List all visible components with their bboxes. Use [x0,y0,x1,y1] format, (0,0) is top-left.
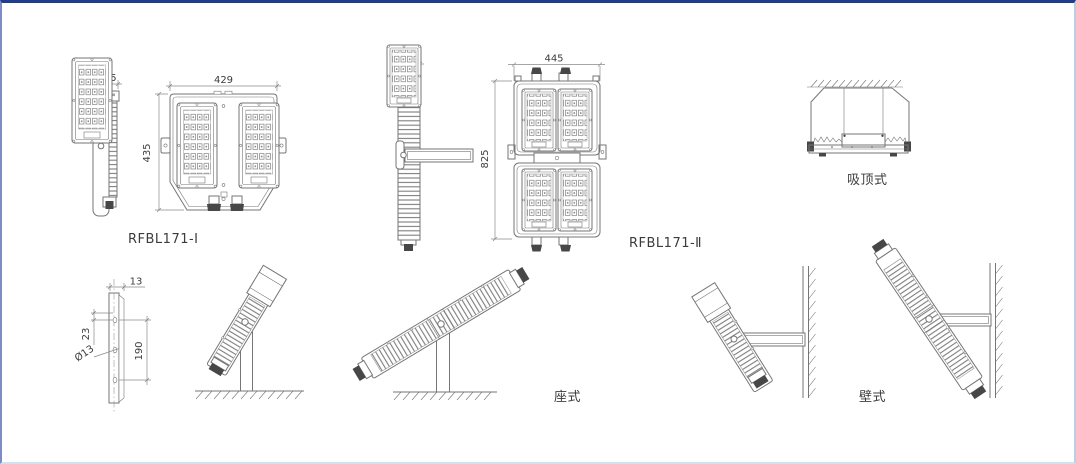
pedestal-mount-label: 座式 [554,386,581,405]
wall-mount-label: 壁式 [859,386,886,405]
pedestal-lamp-steep [195,265,304,399]
led-module [72,58,112,143]
model1-front-height-dim: 435 [142,143,153,162]
cable-glands [207,196,244,211]
model1-drawing: 88.5 429 435 [72,58,302,258]
bracket-detail-drawing: 13 23 190 Ø13 [67,275,177,415]
ceiling-mount-label: 吸顶式 [847,169,888,188]
wall-lamp-long [868,236,1003,402]
bracket-dim-width: 13 [106,277,145,292]
model1-front-width-dim: 429 [214,75,233,86]
pedestal-lamp-shallow [350,263,532,400]
wall-lamp-short [692,266,816,398]
svg-text:13: 13 [130,277,143,288]
mounting-arm-side [405,149,473,162]
model1-label: RFBL171-Ⅰ [128,232,199,247]
wall-mount-drawing [692,241,1004,406]
model2-front-height-dim: 825 [480,149,491,168]
technical-drawing-panel: 88.5 429 435 [0,0,1076,464]
model2-front-width-dim: 445 [544,54,563,65]
svg-text:23: 23 [81,328,92,341]
led-module [387,45,421,107]
lamp-profile [807,134,911,157]
svg-text:190: 190 [134,341,145,360]
bracket-dim-hole-offset: 23 [81,309,113,345]
model2-drawing: 88.5 445 825 [387,45,712,255]
pedestal-mount-drawing [187,258,587,408]
svg-text:Ø13: Ø13 [72,343,96,364]
ceiling-hatch [807,80,903,87]
